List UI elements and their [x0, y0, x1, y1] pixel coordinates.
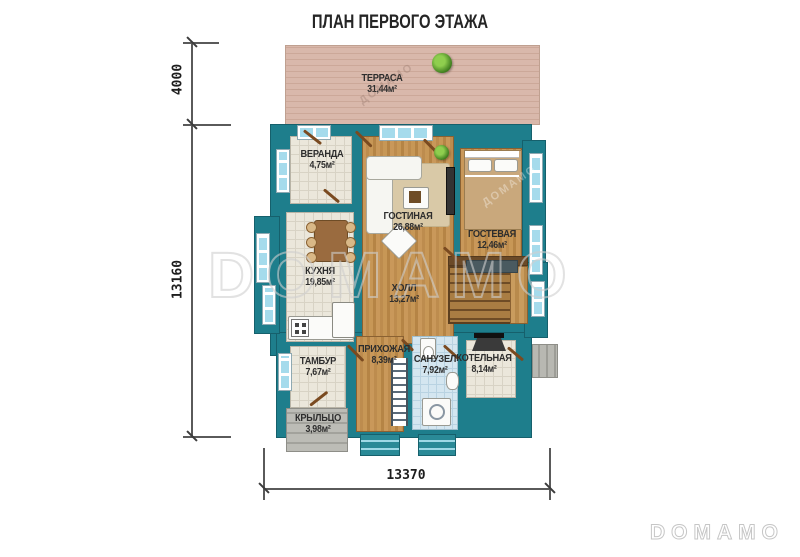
window-kitchen-left-1 — [257, 234, 269, 282]
room-label-hall: ХОЛЛ 13,27м² — [373, 282, 435, 306]
dimension-line-bottom — [263, 488, 550, 490]
bottom-step-left — [360, 434, 400, 456]
room-area: 26,88м² — [368, 222, 447, 234]
room-label-boiler: КОТЕЛЬНАЯ 8,14м² — [452, 352, 515, 376]
window-guest-right-1 — [530, 154, 542, 202]
guest-dresser — [466, 260, 518, 273]
tv-panel — [446, 167, 455, 215]
washing-machine — [422, 398, 451, 426]
room-name: ГОСТЕВАЯ — [457, 228, 527, 240]
window-guest-right-2 — [530, 226, 542, 274]
bed-pillow-right — [494, 159, 518, 172]
chair — [345, 222, 356, 233]
bed-pillow-left — [468, 159, 492, 172]
dim-ext-top — [183, 42, 219, 44]
room-label-veranda: ВЕРАНДА 4,75м² — [291, 148, 353, 172]
coffee-table-tray — [409, 191, 421, 203]
chair — [306, 237, 317, 248]
room-label-terrace: ТЕРРАСА 31,44м² — [338, 72, 426, 96]
bed-blanket-line — [465, 175, 519, 177]
room-area: 4,75м² — [291, 160, 353, 172]
stove-burners — [295, 323, 299, 327]
guest-bed — [464, 150, 522, 230]
stairs-side-landing — [510, 266, 528, 324]
chair — [306, 252, 317, 263]
bed-headboard — [465, 151, 519, 158]
room-name: КОТЕЛЬНАЯ — [452, 352, 515, 364]
room-label-porch: КРЫЛЬЦО 3,98м² — [287, 412, 349, 436]
room-area: 12,46м² — [457, 240, 527, 252]
page-title: ПЛАН ПЕРВОГО ЭТАЖА — [88, 12, 712, 34]
room-area: 8,14м² — [452, 364, 515, 376]
room-label-guest: ГОСТЕВАЯ 12,46м² — [457, 228, 527, 252]
stove — [291, 319, 309, 337]
window-veranda-left — [277, 150, 289, 192]
right-side-steps — [532, 344, 558, 378]
room-area: 19,85м² — [289, 277, 351, 289]
room-name: ГОСТИНАЯ — [368, 210, 447, 222]
fridge — [332, 302, 355, 338]
dining-table — [314, 220, 348, 262]
dimension-value-13160: 13160 — [171, 248, 186, 312]
dimension-value-4000: 4000 — [171, 54, 186, 106]
watermark-logo: DOMAMO — [650, 521, 784, 545]
plant-icon — [432, 53, 452, 73]
room-area: 31,44м² — [338, 84, 426, 96]
dimension-value-13370: 13370 — [346, 468, 466, 483]
bottom-step-right — [418, 434, 456, 456]
room-name: КРЫЛЬЦО — [287, 412, 349, 424]
window-stairs-right — [532, 282, 544, 316]
room-name: ТЕРРАСА — [338, 72, 426, 84]
chair — [306, 222, 317, 233]
dimension-line-left — [191, 42, 193, 438]
room-area: 13,27м² — [373, 294, 435, 306]
room-name: ВЕРАНДА — [291, 148, 353, 160]
room-label-tambour: ТАМБУР 7,67м² — [287, 355, 349, 379]
staircase — [448, 266, 512, 324]
chair — [345, 252, 356, 263]
chair — [345, 237, 356, 248]
window-kitchen-left-2 — [263, 286, 275, 324]
room-area: 7,67м² — [287, 367, 349, 379]
room-name: КУХНЯ — [289, 265, 351, 277]
room-name: ХОЛЛ — [373, 282, 435, 294]
boiler-vent — [474, 333, 504, 338]
plant-icon-living — [434, 145, 449, 160]
dim-ext-bl — [263, 448, 265, 500]
room-area: 3,98м² — [287, 424, 349, 436]
dim-ext-br — [549, 448, 551, 500]
room-label-living: ГОСТИНАЯ 26,88м² — [368, 210, 447, 234]
boiler-hood — [472, 338, 506, 351]
room-label-kitchen: КУХНЯ 19,85м² — [289, 265, 351, 289]
room-name: ТАМБУР — [287, 355, 349, 367]
sofa-top-segment — [366, 156, 422, 180]
